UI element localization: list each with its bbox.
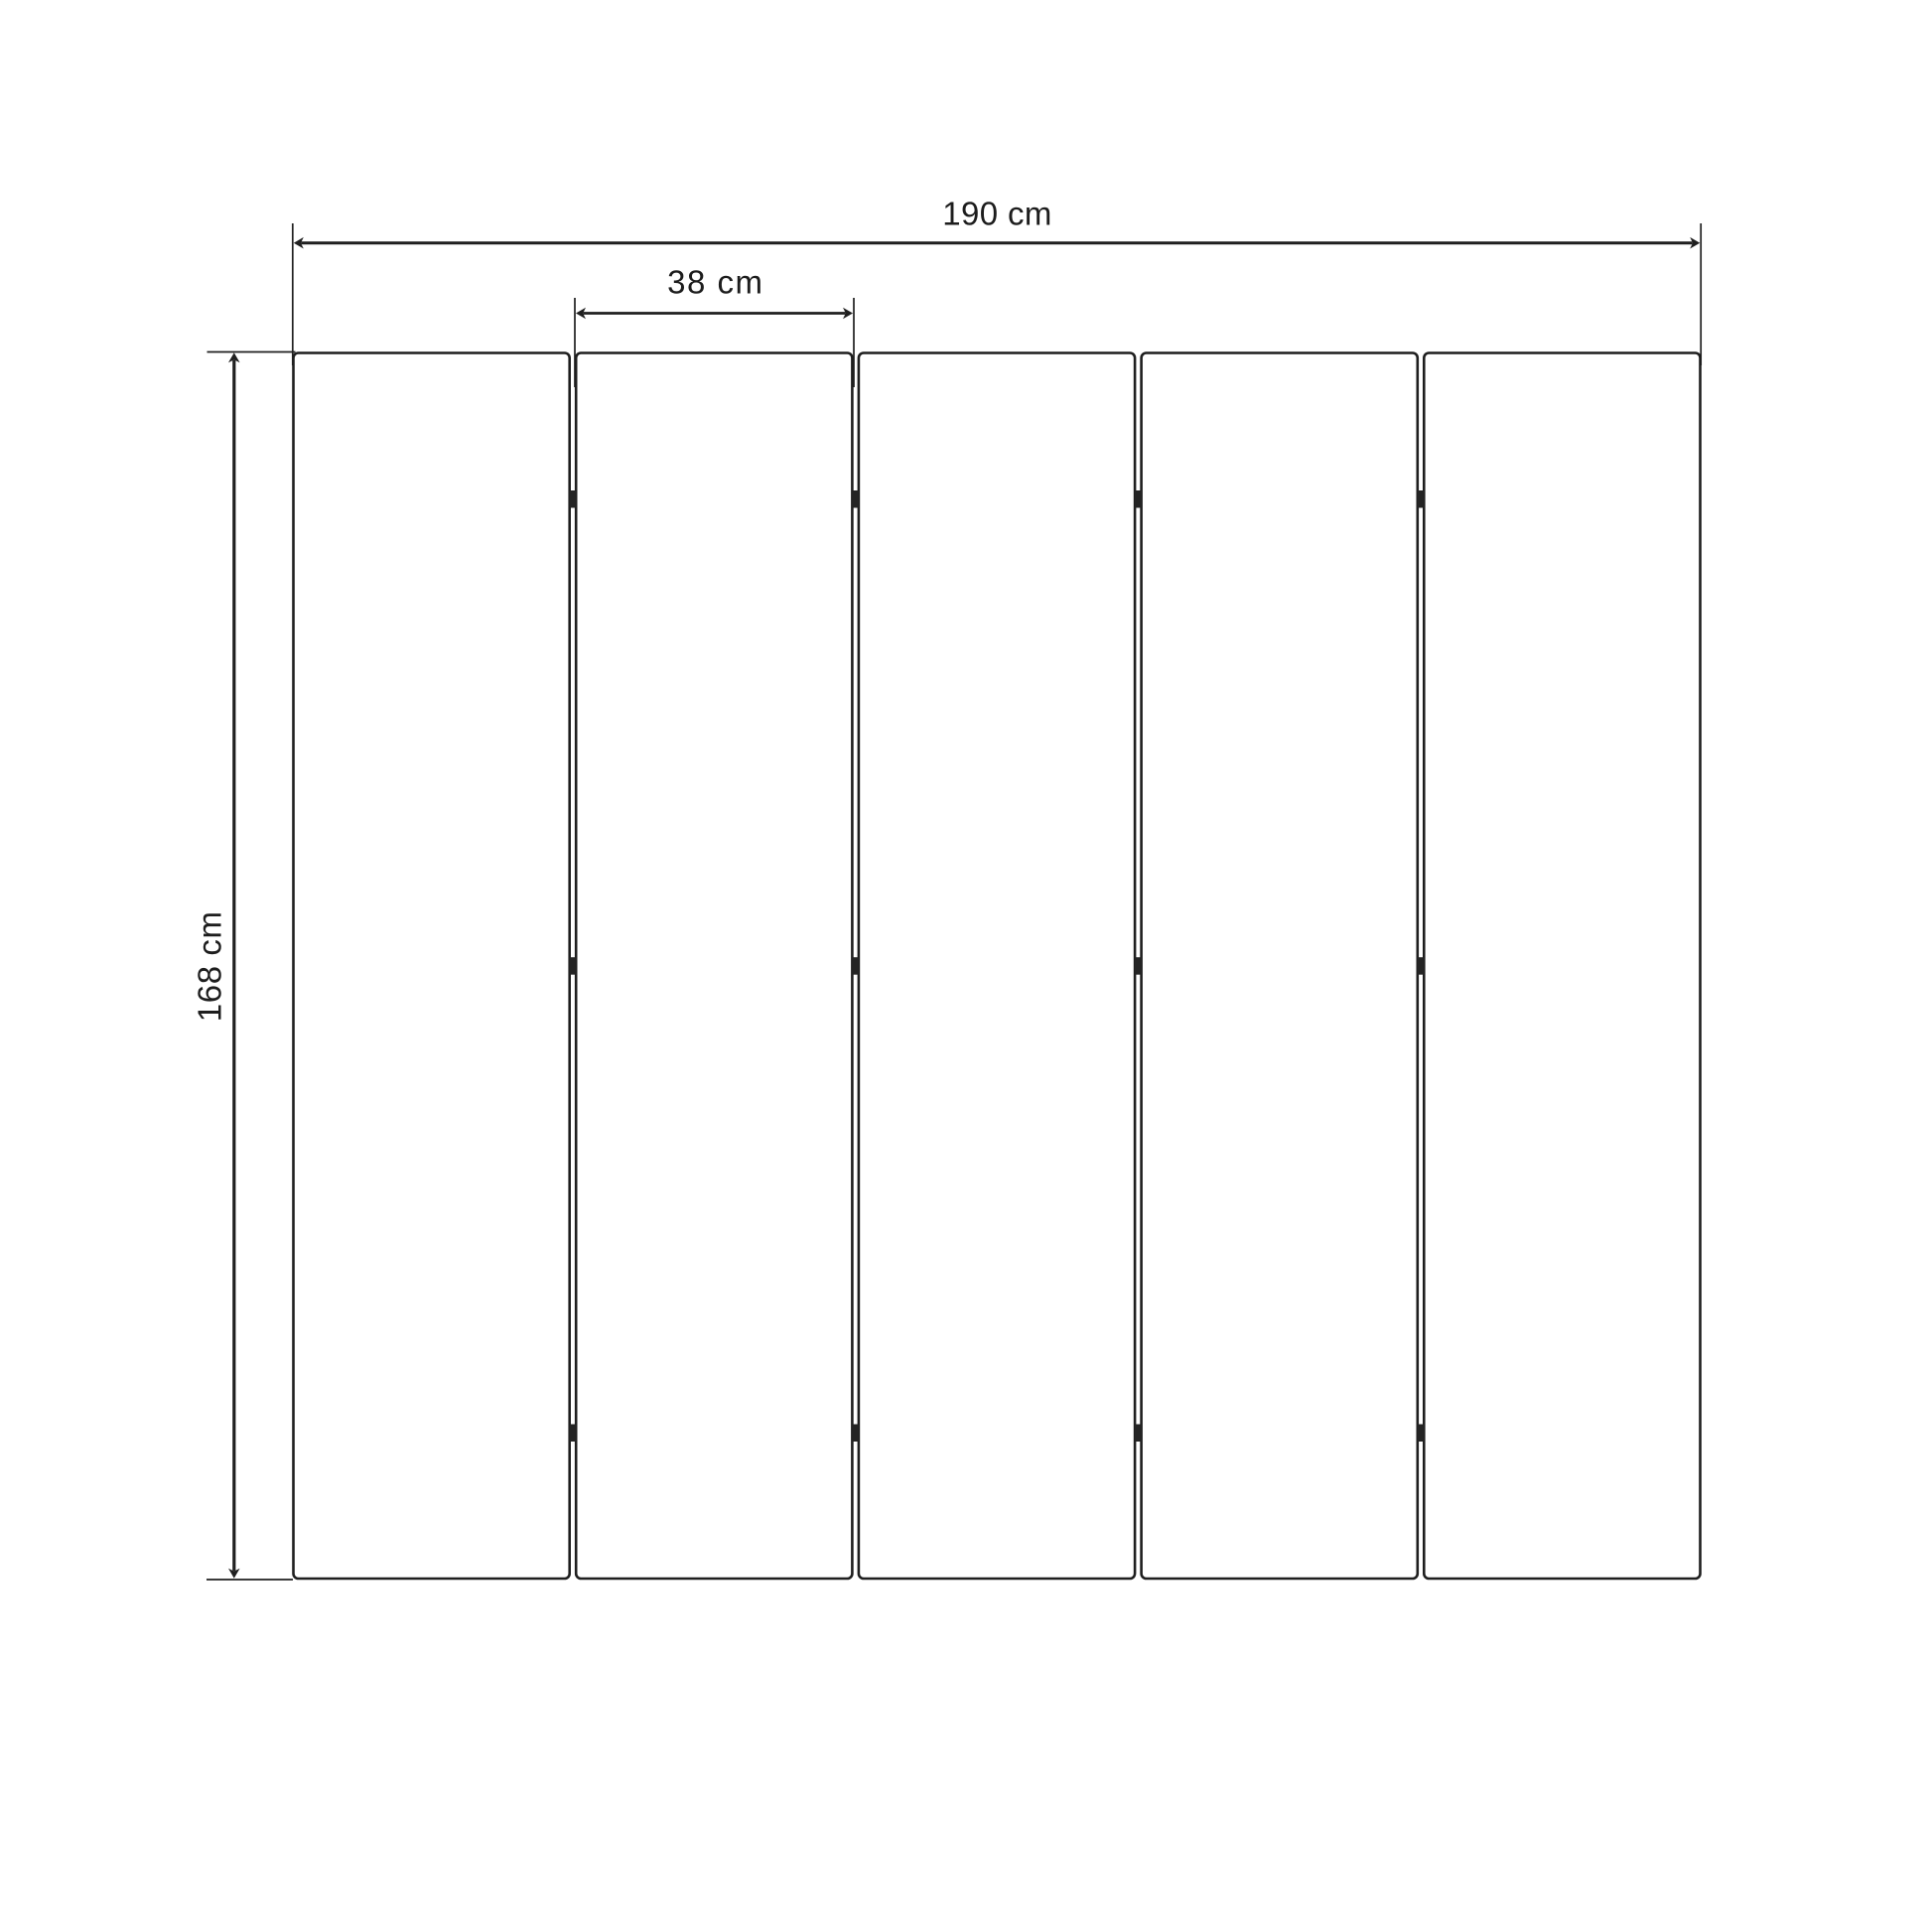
svg-text:38 cm: 38 cm [667, 263, 763, 300]
svg-text:190 cm: 190 cm [942, 195, 1052, 231]
svg-text:168 cm: 168 cm [191, 910, 227, 1022]
